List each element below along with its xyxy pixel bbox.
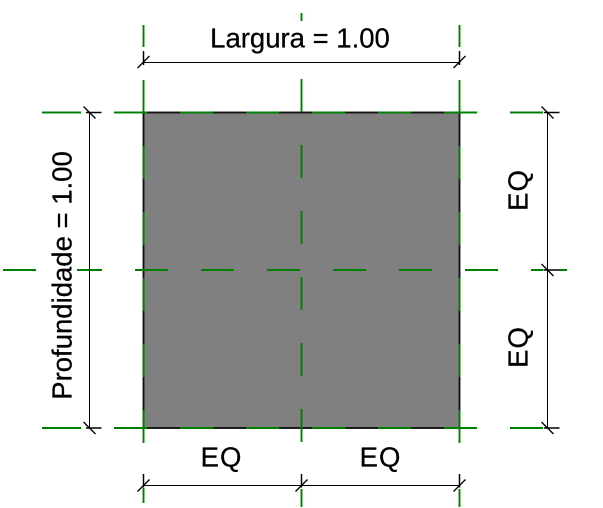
svg-text:Profundidade = 1.00: Profundidade = 1.00 (47, 151, 78, 399)
svg-text:Largura = 1.00: Largura = 1.00 (210, 23, 390, 54)
svg-text:EQ: EQ (503, 326, 534, 368)
svg-text:EQ: EQ (360, 442, 402, 473)
svg-text:EQ: EQ (503, 169, 534, 211)
svg-text:EQ: EQ (201, 442, 243, 473)
